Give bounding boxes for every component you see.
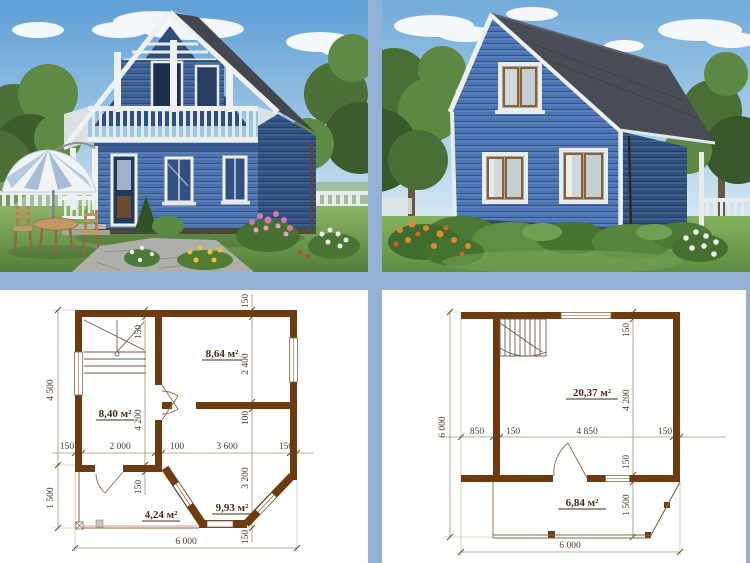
dim-label: 2 400: [241, 353, 251, 375]
dim-label: 2 000: [109, 442, 131, 452]
first-floor-plan-drawing: 4 500 1 500 150 2 000 100 3 600 150 150 …: [0, 290, 368, 563]
dim-label: 850: [470, 427, 485, 437]
doors: [96, 385, 178, 493]
balcony-door: [152, 62, 182, 110]
dim-label: 4 200: [622, 389, 632, 411]
right-edge-strip: [746, 290, 750, 563]
table: [34, 218, 78, 254]
balcony-window: [196, 66, 218, 108]
room-labels: 20,37 м² 6,84 м²: [566, 387, 612, 509]
floor-plan-first-floor: 4 500 1 500 150 2 000 100 3 600 150 150 …: [0, 290, 368, 563]
floor-plan-second-floor: 6 000 850 150 4 850 150 150 4 200 150 1 …: [382, 290, 750, 563]
room-area-label: 4,24 м²: [145, 509, 178, 521]
dim-label-total-width: 6 000: [175, 537, 197, 547]
dim-label: 150: [134, 480, 144, 495]
dim-label: 4 200: [134, 409, 144, 431]
horizontal-divider: [0, 272, 750, 290]
dim-label: 100: [170, 442, 185, 452]
dim-label: 6 000: [438, 416, 448, 438]
room-label-underlines: [96, 360, 252, 521]
second-floor-plan-drawing: 6 000 850 150 4 850 150 150 4 200 150 1 …: [382, 290, 750, 563]
dim-label: 4 500: [46, 379, 56, 401]
dim-label-total-width: 6 000: [559, 541, 581, 551]
dim-label: 1 500: [622, 494, 632, 516]
entry-door: [112, 155, 136, 225]
rear-window-1: [482, 152, 528, 204]
dim-label: 3 200: [241, 467, 251, 489]
room-label-underlines: [558, 399, 618, 509]
photo-back-view: [382, 0, 750, 272]
terrace-outline: [493, 482, 680, 538]
stairs: [500, 319, 546, 356]
dim-label: 150: [241, 294, 251, 309]
house-project-collage: 4 500 1 500 150 2 000 100 3 600 150 150 …: [0, 0, 750, 563]
dimension-lines: [52, 294, 314, 548]
room-area-label: 6,84 м²: [566, 497, 599, 509]
dimension-ticks: [55, 307, 300, 551]
room-area-label: 9,93 м²: [216, 502, 249, 514]
front-window-1: [162, 158, 196, 206]
doors: [554, 443, 587, 478]
front-window-2: [221, 157, 250, 205]
room-area-label: 8,40 м²: [99, 408, 132, 420]
attic-window: [495, 62, 545, 114]
dim-label: 150: [658, 427, 673, 437]
dim-label: 150: [60, 442, 75, 452]
dim-label: 100: [241, 411, 251, 426]
dim-label: 150: [506, 427, 521, 437]
dim-label: 150: [241, 530, 251, 545]
dim-label: 4 850: [576, 427, 598, 437]
dim-label: 1 500: [46, 487, 56, 509]
room-area-label: 20,37 м²: [573, 387, 612, 399]
dim-label: 150: [279, 442, 294, 452]
photo-front-view: [0, 0, 368, 272]
front-house-illustration: [0, 0, 368, 272]
dim-label: 150: [622, 455, 632, 470]
veranda-post: [699, 152, 704, 232]
rear-window-2: [559, 148, 608, 204]
dim-label: 150: [622, 323, 632, 338]
dim-label: 150: [134, 325, 144, 340]
room-labels: 8,64 м² 8,40 м² 4,24 м² 9,93 м²: [99, 348, 249, 521]
rear-house-illustration: [382, 0, 750, 272]
room-area-label: 8,64 м²: [206, 348, 239, 360]
dim-label: 3 600: [216, 442, 238, 452]
